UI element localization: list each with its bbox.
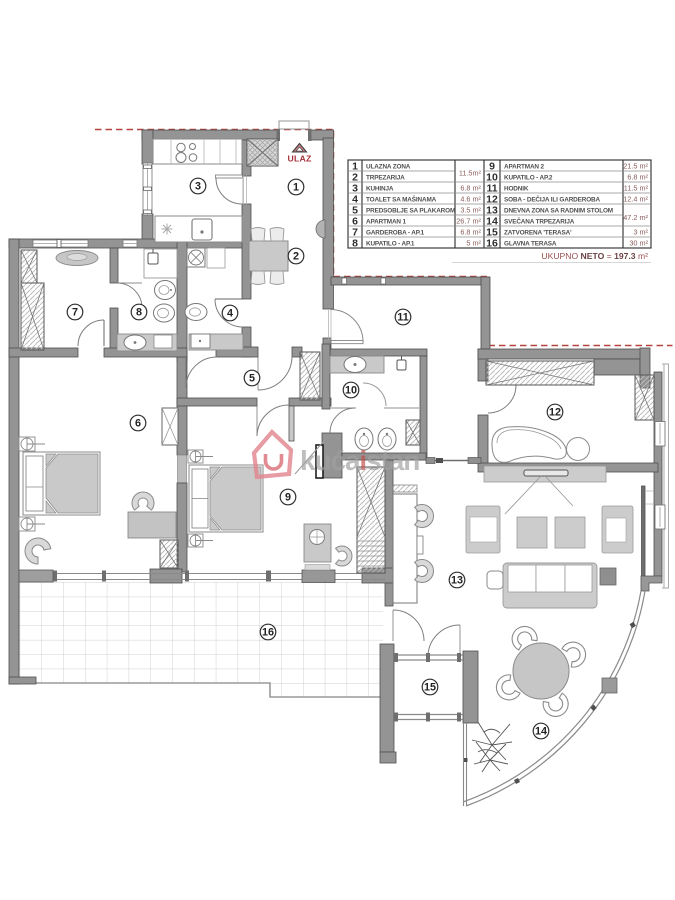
svg-text:TRPEZARIJA: TRPEZARIJA [366, 175, 405, 182]
svg-text:KUPATILO - AP.1: KUPATILO - AP.1 [366, 241, 415, 248]
svg-text:ULAZ: ULAZ [288, 154, 312, 164]
svg-text:21.5 m²: 21.5 m² [623, 162, 648, 171]
svg-text:1: 1 [293, 182, 299, 194]
svg-text:3 m²: 3 m² [633, 228, 648, 237]
svg-text:16: 16 [486, 238, 498, 250]
svg-text:13: 13 [451, 575, 463, 587]
svg-text:ULAZNA ZONA: ULAZNA ZONA [366, 164, 411, 171]
svg-text:8: 8 [352, 238, 358, 250]
svg-text:3.5 m²: 3.5 m² [460, 206, 481, 215]
svg-text:30 m²: 30 m² [629, 239, 648, 248]
svg-text:HODNIK: HODNIK [504, 186, 529, 193]
svg-text:KUPATILO - AP.2: KUPATILO - AP.2 [504, 175, 553, 182]
svg-text:5 m²: 5 m² [466, 239, 481, 248]
svg-text:7: 7 [72, 307, 78, 319]
svg-text:6.8 m²: 6.8 m² [460, 228, 481, 237]
svg-text:4: 4 [227, 308, 233, 320]
svg-text:8: 8 [136, 307, 142, 319]
svg-text:DNEVNA ZONA SA RADNIM STOLOM: DNEVNA ZONA SA RADNIM STOLOM [504, 208, 613, 215]
svg-text:10: 10 [345, 385, 357, 397]
svg-text:11.5 m²: 11.5 m² [624, 184, 649, 193]
svg-text:26.7 m²: 26.7 m² [456, 217, 481, 226]
svg-text:6.8 m²: 6.8 m² [627, 173, 648, 182]
svg-text:KUHINJA: KUHINJA [366, 186, 394, 193]
svg-text:12.4 m²: 12.4 m² [623, 195, 648, 204]
svg-text:2: 2 [293, 251, 299, 263]
svg-text:PREDSOBLJE SA PLAKAROM: PREDSOBLJE SA PLAKAROM [366, 208, 455, 215]
svg-text:47.2 m²: 47.2 m² [623, 213, 648, 222]
svg-text:GARDEROBA - AP.1: GARDEROBA - AP.1 [366, 230, 425, 237]
svg-text:4.6 m²: 4.6 m² [460, 195, 481, 204]
svg-text:SVEČANA TRPEZARIJA: SVEČANA TRPEZARIJA [504, 217, 575, 226]
svg-text:9: 9 [285, 492, 291, 504]
svg-text:3: 3 [195, 181, 201, 193]
svg-text:6: 6 [135, 418, 141, 430]
svg-text:16: 16 [262, 627, 274, 639]
svg-text:GLAVNA TERASA: GLAVNA TERASA [504, 241, 557, 248]
svg-text:14: 14 [535, 726, 547, 738]
svg-text:15: 15 [424, 682, 436, 694]
svg-text:SOBA - DEČIJA ILI GARDEROBA: SOBA - DEČIJA ILI GARDEROBA [504, 195, 600, 204]
svg-text:UKUPNO NETO = 197.3 m²: UKUPNO NETO = 197.3 m² [541, 251, 648, 261]
svg-text:11.5m²: 11.5m² [459, 169, 482, 178]
svg-text:11: 11 [397, 312, 408, 324]
svg-text:12: 12 [549, 407, 561, 419]
svg-text:TOALET SA MAŠINAMA: TOALET SA MAŠINAMA [366, 195, 437, 204]
svg-text:6.8 m²: 6.8 m² [460, 184, 481, 193]
svg-text:ZATVORENA 'TERASA': ZATVORENA 'TERASA' [504, 230, 572, 237]
svg-text:kućaistan: kućaistan [300, 445, 419, 476]
svg-text:APARTMAN 2: APARTMAN 2 [504, 164, 545, 171]
svg-text:APARTMAN 1: APARTMAN 1 [366, 219, 407, 226]
svg-text:5: 5 [249, 373, 255, 385]
